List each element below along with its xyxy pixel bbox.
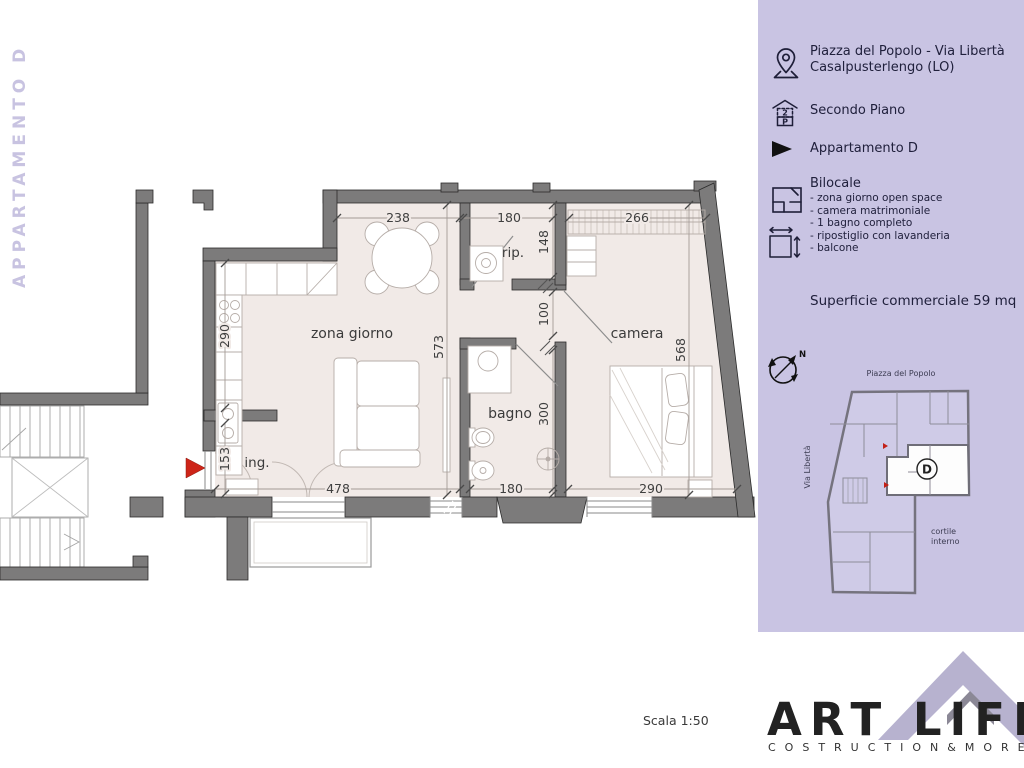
- dining-set: [365, 222, 439, 294]
- bidet: [472, 461, 494, 480]
- wall-mid-lower: [555, 342, 566, 497]
- mini-plan-left-label: Via Libertà: [803, 445, 812, 488]
- compass-arrowhead: [791, 374, 798, 382]
- window-bedroom: [587, 497, 652, 517]
- washing-machine: [470, 246, 503, 281]
- room-label-bedroom: camera: [611, 326, 664, 342]
- floor-label: Secondo Piano: [810, 103, 905, 118]
- wall-stair-right: [136, 203, 148, 393]
- nightstand: [688, 480, 712, 497]
- address-line1: Piazza del Popolo - Via Libertà: [810, 44, 1005, 60]
- elevator-x: [12, 458, 88, 517]
- dim-153: 153: [217, 447, 232, 471]
- toilet: [472, 428, 494, 447]
- wall-pillar: [533, 183, 550, 192]
- vanity: [468, 346, 511, 393]
- pillow: [665, 411, 689, 445]
- address-line2: Casalpusterlengo (LO): [810, 60, 1005, 76]
- unit-d-letter: D: [922, 463, 932, 477]
- stairs-lower: [0, 518, 84, 567]
- stairs-upper: [0, 406, 84, 457]
- address-block: Piazza del Popolo - Via Libertà Casalpus…: [810, 44, 1005, 76]
- shower: [537, 448, 559, 470]
- wall-top: [323, 190, 712, 203]
- entrance-opening: [205, 451, 211, 489]
- double-bed: [610, 366, 712, 477]
- apartment-label: Appartamento D: [810, 141, 918, 156]
- dim-300: 300: [536, 402, 551, 426]
- wall-stub-topleft: [193, 190, 213, 210]
- sofa: [334, 358, 420, 467]
- wall-bottom-2: [345, 497, 430, 517]
- surface-label: Superficie commerciale 59 mq: [810, 293, 1016, 309]
- round-table: [372, 228, 432, 288]
- dimensions-icon: [766, 224, 802, 262]
- location-pin-icon: [768, 44, 804, 82]
- play-triangle-icon: [770, 139, 794, 159]
- dim-148: 148: [536, 230, 551, 254]
- brand-subtitle: COSTRUCTION&MORE: [768, 741, 1024, 754]
- floor-level-icon: 2 P: [768, 96, 802, 130]
- balcony-door-sill: [272, 502, 345, 512]
- svg-text:2: 2: [782, 109, 788, 118]
- wall-stair-cap: [136, 190, 153, 203]
- pillow: [665, 373, 689, 407]
- feature-item: - balcone: [810, 242, 950, 255]
- dim-478: 478: [326, 481, 350, 496]
- scale-label: Scala 1:50: [643, 713, 709, 728]
- dim-290-bottom: 290: [639, 481, 663, 496]
- balcony: [250, 518, 371, 567]
- wall-pillar: [441, 183, 458, 192]
- footer-logo-block: Scala 1:50 ART LIFE COSTRUCTION&MORE: [630, 645, 1024, 768]
- mini-site-plan: Piazza del Popolo D Via Libertà cortile …: [800, 362, 1012, 614]
- dim-100: 100: [536, 302, 551, 326]
- wall-bottom-block: [497, 497, 587, 523]
- type-title: Bilocale: [810, 176, 861, 191]
- room-label-bath: bagno: [488, 406, 532, 422]
- wall-bottom-3: [462, 497, 497, 517]
- courtyard-label-1: cortile: [931, 527, 956, 536]
- wall-bottom-1: [185, 497, 272, 517]
- dim-180-top: 180: [497, 210, 521, 225]
- stairs-direction-line: [2, 428, 26, 450]
- dim-290-left: 290: [217, 324, 232, 348]
- svg-text:P: P: [782, 117, 788, 126]
- room-label-storage: rip.: [502, 245, 524, 261]
- feature-item: - 1 bagno completo: [810, 217, 950, 230]
- dim-266: 266: [625, 210, 649, 225]
- dim-573: 573: [431, 335, 446, 359]
- dim-180-bottom: 180: [499, 481, 523, 496]
- wall-stair-top: [0, 393, 148, 405]
- stairs-arrow: [64, 534, 79, 550]
- feature-item: - zona giorno open space: [810, 192, 950, 205]
- info-sidebar: Piazza del Popolo - Via Libertà Casalpus…: [758, 0, 1024, 632]
- wall-below-vertical: [227, 517, 248, 580]
- wall-stair-step: [133, 556, 148, 567]
- window-living: [430, 497, 462, 517]
- stair-treads-upper: [10, 406, 80, 457]
- entry-cabinet: [226, 479, 258, 495]
- radiator: [443, 378, 450, 472]
- stair-treads-lower: [10, 518, 80, 567]
- feature-list: - zona giorno open space - camera matrim…: [810, 192, 950, 255]
- feature-item: - camera matrimoniale: [810, 205, 950, 218]
- dim-568: 568: [673, 338, 688, 362]
- compass-n-label: N: [799, 350, 806, 360]
- stairwell: [0, 406, 88, 567]
- dim-238: 238: [386, 210, 410, 225]
- entrance-arrow-icon: [186, 458, 205, 478]
- courtyard-label-2: interno: [931, 537, 960, 546]
- floorplan-icon: [768, 183, 806, 217]
- feature-item: - ripostiglio con lavanderia: [810, 230, 950, 243]
- wall-stair-bottom: [0, 567, 148, 580]
- mini-plan-top-label: Piazza del Popolo: [867, 369, 936, 378]
- wall-step: [203, 248, 337, 261]
- wall-bottom-far-left: [130, 497, 163, 517]
- room-label-living: zona giorno: [311, 326, 393, 342]
- brand-name: ART LIFE: [767, 693, 1024, 746]
- room-label-entry: ing.: [244, 455, 269, 471]
- wall-left: [203, 261, 215, 451]
- dresser: [567, 236, 596, 276]
